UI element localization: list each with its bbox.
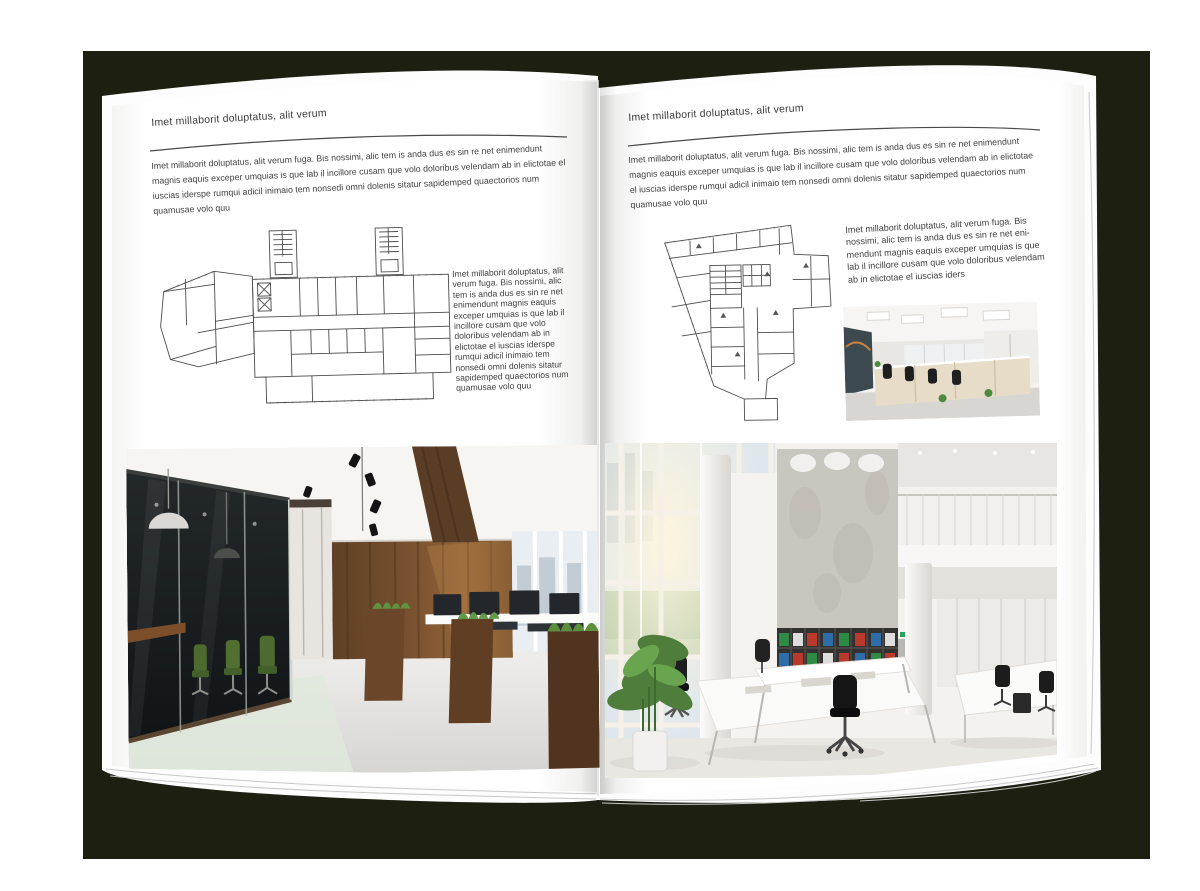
right-page-photo-small <box>843 302 1040 421</box>
right-page-photo-large <box>605 443 1057 778</box>
brochure-mockup-scene: Imet millaborit doluptatus, alit verum I… <box>0 0 1200 891</box>
left-page-photo <box>126 445 600 775</box>
floor-plan-left <box>150 220 453 424</box>
left-page-side-text: Imet millaborit doluptatus, alit verum f… <box>452 265 574 394</box>
floor-plan-right <box>646 217 846 424</box>
right-page-side-text: Imet millaborit doluptatus, alit verum f… <box>845 214 1048 286</box>
